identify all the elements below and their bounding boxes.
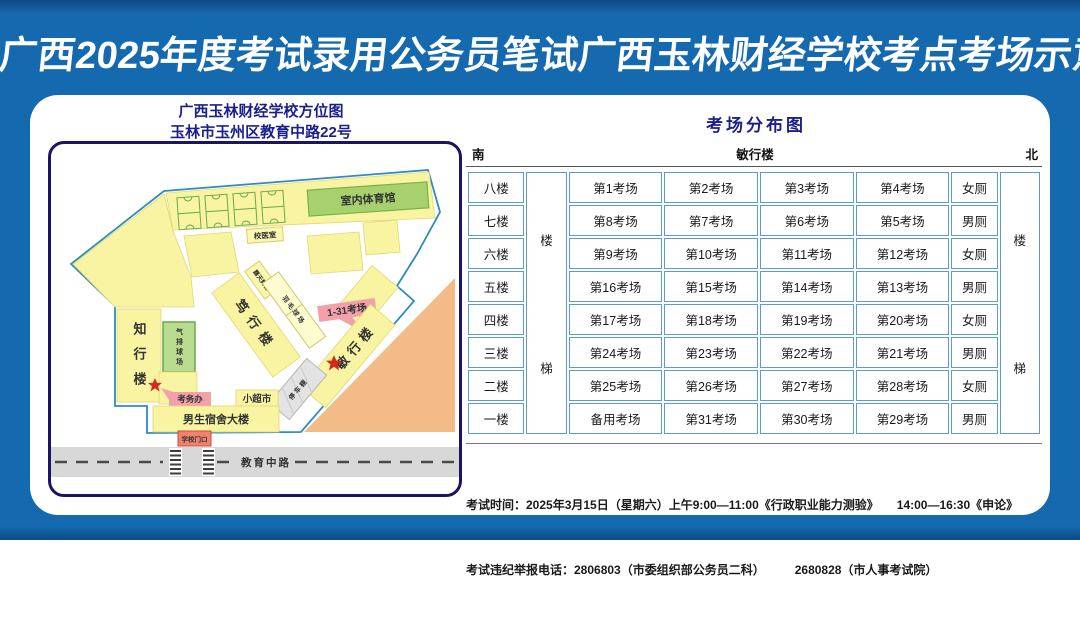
exam-room-cell: 第14考场 (760, 271, 854, 302)
exam-room-cell: 第25考场 (569, 370, 663, 401)
exam-room-cell: 第8考场 (569, 205, 663, 236)
floor-label: 三楼 (468, 337, 524, 368)
exam-room-cell: 备用考场 (569, 403, 663, 434)
floor-label: 七楼 (468, 205, 524, 236)
exam-room-cell: 第27考场 (760, 370, 854, 401)
road: 教育中路 (51, 447, 459, 477)
exam-room-cell: 第6考场 (760, 205, 854, 236)
poster-title-text: 广西2025年度考试录用公务员笔试广西玉林财经学校考点考场示意图 (0, 24, 1080, 79)
building-shape (184, 232, 239, 277)
building-shape (307, 232, 363, 274)
exam-room-cell: 第1考场 (569, 172, 663, 203)
floor-label: 六楼 (468, 238, 524, 269)
floor-row: 八楼楼梯第1考场第2考场第3考场第4考场女厕楼梯 (468, 172, 1040, 203)
toilet-cell: 女厕 (951, 370, 997, 401)
map-title-line2: 玉林市玉州区教育中路22号 (42, 122, 480, 143)
stairwell-right: 楼梯 (1000, 172, 1040, 434)
stair-char: 楼 (1001, 230, 1039, 249)
clinic-building: 校医室 (247, 227, 284, 243)
content-panel: 广西玉林财经学校方位图 玉林市玉州区教育中路22号 室内体育馆 (30, 95, 1050, 515)
exam-room-cell: 第18考场 (664, 304, 758, 335)
building-shape (363, 220, 400, 255)
exam-room-cell: 第7考场 (664, 205, 758, 236)
stairwell-left: 楼梯 (526, 172, 566, 434)
stair-char: 梯 (527, 358, 565, 377)
floor-label: 八楼 (468, 172, 524, 203)
exam-room-cell: 第4考场 (856, 172, 950, 203)
toilet-cell: 男厕 (951, 271, 997, 302)
exam-room-cell: 第3考场 (760, 172, 854, 203)
dorm-label: 男生宿舍大楼 (183, 412, 249, 426)
zhixing-label: 知行楼 (132, 321, 148, 397)
floor-label: 二楼 (468, 370, 524, 401)
distribution-section: 考场分布图 南 敏行楼 北 八楼楼梯第1考场第2考场第3考场第4考场女厕楼梯七楼… (466, 95, 1046, 625)
zebra-crossing (169, 448, 182, 476)
exam-room-cell: 第22考场 (760, 337, 854, 368)
toilet-cell: 男厕 (951, 205, 997, 236)
exam-room-cell: 第21考场 (856, 337, 950, 368)
exam-room-cell: 第29考场 (856, 403, 950, 434)
toilet-cell: 女厕 (951, 172, 997, 203)
table-underline (466, 443, 1042, 444)
supermarket-label: 小超市 (242, 393, 272, 405)
exam-office-label: 考务办 (177, 394, 203, 404)
exam-room-cell: 第11考场 (760, 238, 854, 269)
distribution-title: 考场分布图 (466, 111, 1046, 136)
direction-north: 北 (849, 144, 1042, 163)
exam-room-cell: 第17考场 (569, 304, 663, 335)
toilet-cell: 男厕 (951, 403, 997, 434)
exam-room-cell: 第24考场 (569, 337, 663, 368)
building-name: 敏行楼 (661, 144, 850, 163)
exam-room-cell: 第26考场 (664, 370, 758, 401)
exam-table-body: 八楼楼梯第1考场第2考场第3考场第4考场女厕楼梯七楼第8考场第7考场第6考场第5… (468, 172, 1040, 434)
exam-room-cell: 第30考场 (760, 403, 854, 434)
direction-south: 南 (466, 144, 661, 163)
floor-label: 五楼 (468, 271, 524, 302)
exam-room-table: 八楼楼梯第1考场第2考场第3考场第4考场女厕楼梯七楼第8考场第7考场第6考场第5… (466, 170, 1042, 436)
exam-time-line: 考试时间：2025年3月15日（星期六）上午9:00—11:00《行政职业能力测… (466, 495, 1046, 517)
exam-room-cell: 第23考场 (664, 337, 758, 368)
floor-label: 四楼 (468, 304, 524, 335)
exam-room-cell: 第12考场 (856, 238, 950, 269)
toilet-cell: 女厕 (951, 304, 997, 335)
exam-room-cell: 第10考场 (664, 238, 758, 269)
map-frame: 室内体育馆 校医室 (48, 141, 462, 497)
campus-map-svg: 室内体育馆 校医室 (51, 144, 459, 492)
floor-label: 一楼 (468, 403, 524, 434)
exam-room-cell: 第2考场 (664, 172, 758, 203)
footer-notes: 考试时间：2025年3月15日（星期六）上午9:00—11:00《行政职业能力测… (466, 452, 1046, 625)
map-title-line1: 广西玉林财经学校方位图 (42, 101, 480, 122)
clinic-label: 校医室 (253, 229, 277, 241)
exam-room-cell: 第19考场 (760, 304, 854, 335)
exam-room-cell: 第31考场 (664, 403, 758, 434)
exam-room-cell: 第20考场 (856, 304, 950, 335)
exam-room-cell: 第16考场 (569, 271, 663, 302)
toilet-cell: 女厕 (951, 238, 997, 269)
road-label: 教育中路 (240, 456, 291, 469)
stair-char: 梯 (1001, 358, 1039, 377)
exam-room-cell: 第5考场 (856, 205, 950, 236)
stair-char: 楼 (527, 230, 565, 249)
report-phone-line: 考试违纪举报电话：2806803（市委组织部公务员二科） 2680828（市人事… (466, 560, 1046, 582)
exam-room-cell: 第15考场 (664, 271, 758, 302)
exam-room-cell: 第28考场 (856, 370, 950, 401)
poster-background: 广西2025年度考试录用公务员笔试广西玉林财经学校考点考场示意图 广西玉林财经学… (0, 0, 1080, 540)
gate-label: 学校门口 (182, 435, 208, 444)
map-section: 广西玉林财经学校方位图 玉林市玉州区教育中路22号 (42, 101, 480, 143)
toilet-cell: 男厕 (951, 337, 997, 368)
poster-title: 广西2025年度考试录用公务员笔试广西玉林财经学校考点考场示意图 (0, 24, 1080, 79)
direction-row: 南 敏行楼 北 (466, 144, 1042, 167)
exam-room-cell: 第13考场 (856, 271, 950, 302)
zebra-crossing (202, 448, 215, 476)
exam-room-cell: 第9考场 (569, 238, 663, 269)
